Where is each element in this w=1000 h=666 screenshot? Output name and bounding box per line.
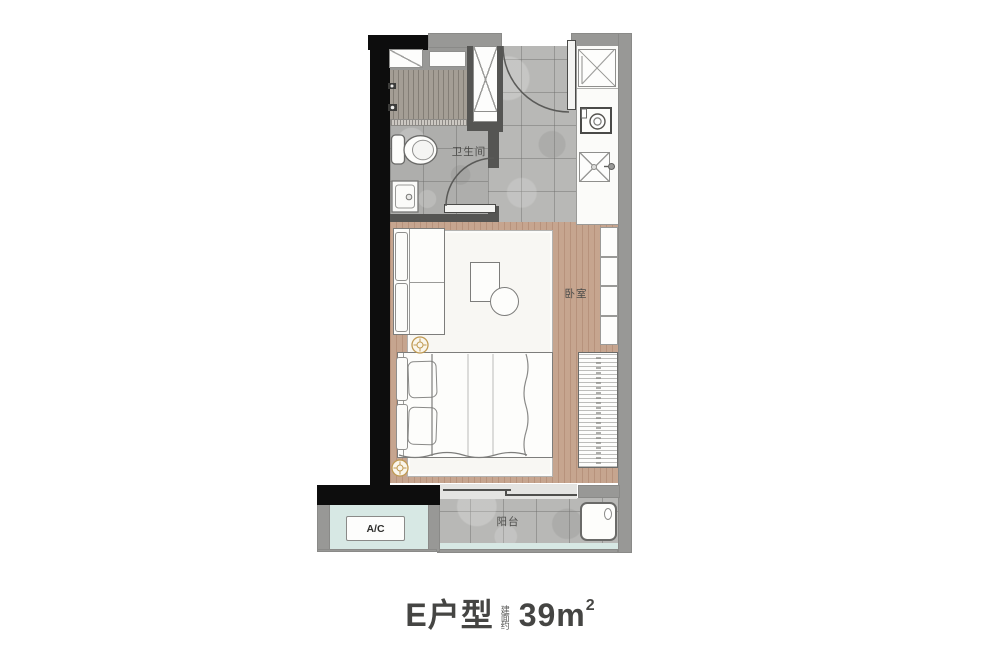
bathroom-cabinet-right bbox=[429, 51, 466, 67]
coffee-table-round bbox=[490, 287, 519, 316]
plan-title: E户型 建面约 39m2 bbox=[0, 598, 1000, 638]
balcony-bottom-sill bbox=[437, 549, 618, 553]
storage-rack bbox=[578, 352, 618, 468]
bathroom-cabinet-left bbox=[389, 49, 423, 68]
sliding-door-connector bbox=[505, 489, 507, 496]
wall-balcony-step bbox=[578, 485, 620, 498]
shower-drain bbox=[390, 119, 467, 126]
balcony-wash-basin bbox=[580, 502, 617, 541]
wardrobe-section bbox=[600, 286, 618, 316]
wardrobe-section bbox=[600, 316, 618, 346]
sofa-seat-line bbox=[410, 282, 444, 283]
area-superscript: 2 bbox=[586, 597, 595, 615]
wardrobe-section bbox=[600, 257, 618, 287]
shower-floor bbox=[388, 70, 467, 121]
partition-right-of-cabinet bbox=[497, 46, 503, 132]
wall-black-ac-bar bbox=[317, 485, 440, 505]
wall-black-left bbox=[370, 35, 390, 487]
sliding-door-panel-left bbox=[443, 489, 511, 491]
wall-right bbox=[618, 33, 632, 553]
washing-machine bbox=[580, 107, 612, 134]
ac-unit-box: A/C bbox=[346, 516, 405, 541]
ac-column-left bbox=[317, 503, 330, 552]
balcony-label: 阳台 bbox=[488, 514, 528, 529]
wardrobe bbox=[600, 227, 618, 345]
ac-bottom-sill bbox=[317, 549, 437, 552]
sliding-door-track bbox=[440, 484, 577, 499]
unit-name: E户型 bbox=[405, 598, 493, 632]
bathroom-bottom-wall bbox=[390, 214, 499, 222]
entry-tall-cabinet-base bbox=[473, 111, 498, 122]
pillow bbox=[407, 407, 437, 446]
pillow bbox=[407, 361, 437, 399]
area-figure: 39m2 bbox=[519, 598, 595, 632]
sofa-cushion bbox=[395, 283, 408, 332]
entry-door-leaf bbox=[567, 40, 576, 110]
ac-column-right bbox=[428, 503, 440, 552]
area-value: 39m bbox=[519, 598, 586, 632]
pillow-back bbox=[396, 404, 408, 450]
area-note: 建面约 bbox=[501, 606, 512, 630]
entry-tall-cabinet bbox=[473, 46, 498, 113]
sofa-cushion bbox=[395, 232, 408, 281]
floor-plan: A/C bbox=[0, 0, 1000, 666]
bathroom-floor bbox=[390, 126, 488, 215]
pillow-back bbox=[396, 357, 408, 401]
counter-sink bbox=[579, 152, 610, 182]
bathroom-door-leaf bbox=[444, 204, 496, 213]
bathroom-label: 卫生间 bbox=[438, 144, 500, 159]
partition-below-cabinet bbox=[467, 122, 503, 131]
bedroom-label: 卧室 bbox=[556, 286, 596, 301]
wardrobe-section bbox=[600, 227, 618, 257]
counter-divider bbox=[577, 88, 618, 89]
counter-top-cabinet bbox=[578, 49, 616, 87]
ac-unit-label: A/C bbox=[364, 523, 386, 535]
sliding-door-panel-right bbox=[506, 494, 577, 496]
